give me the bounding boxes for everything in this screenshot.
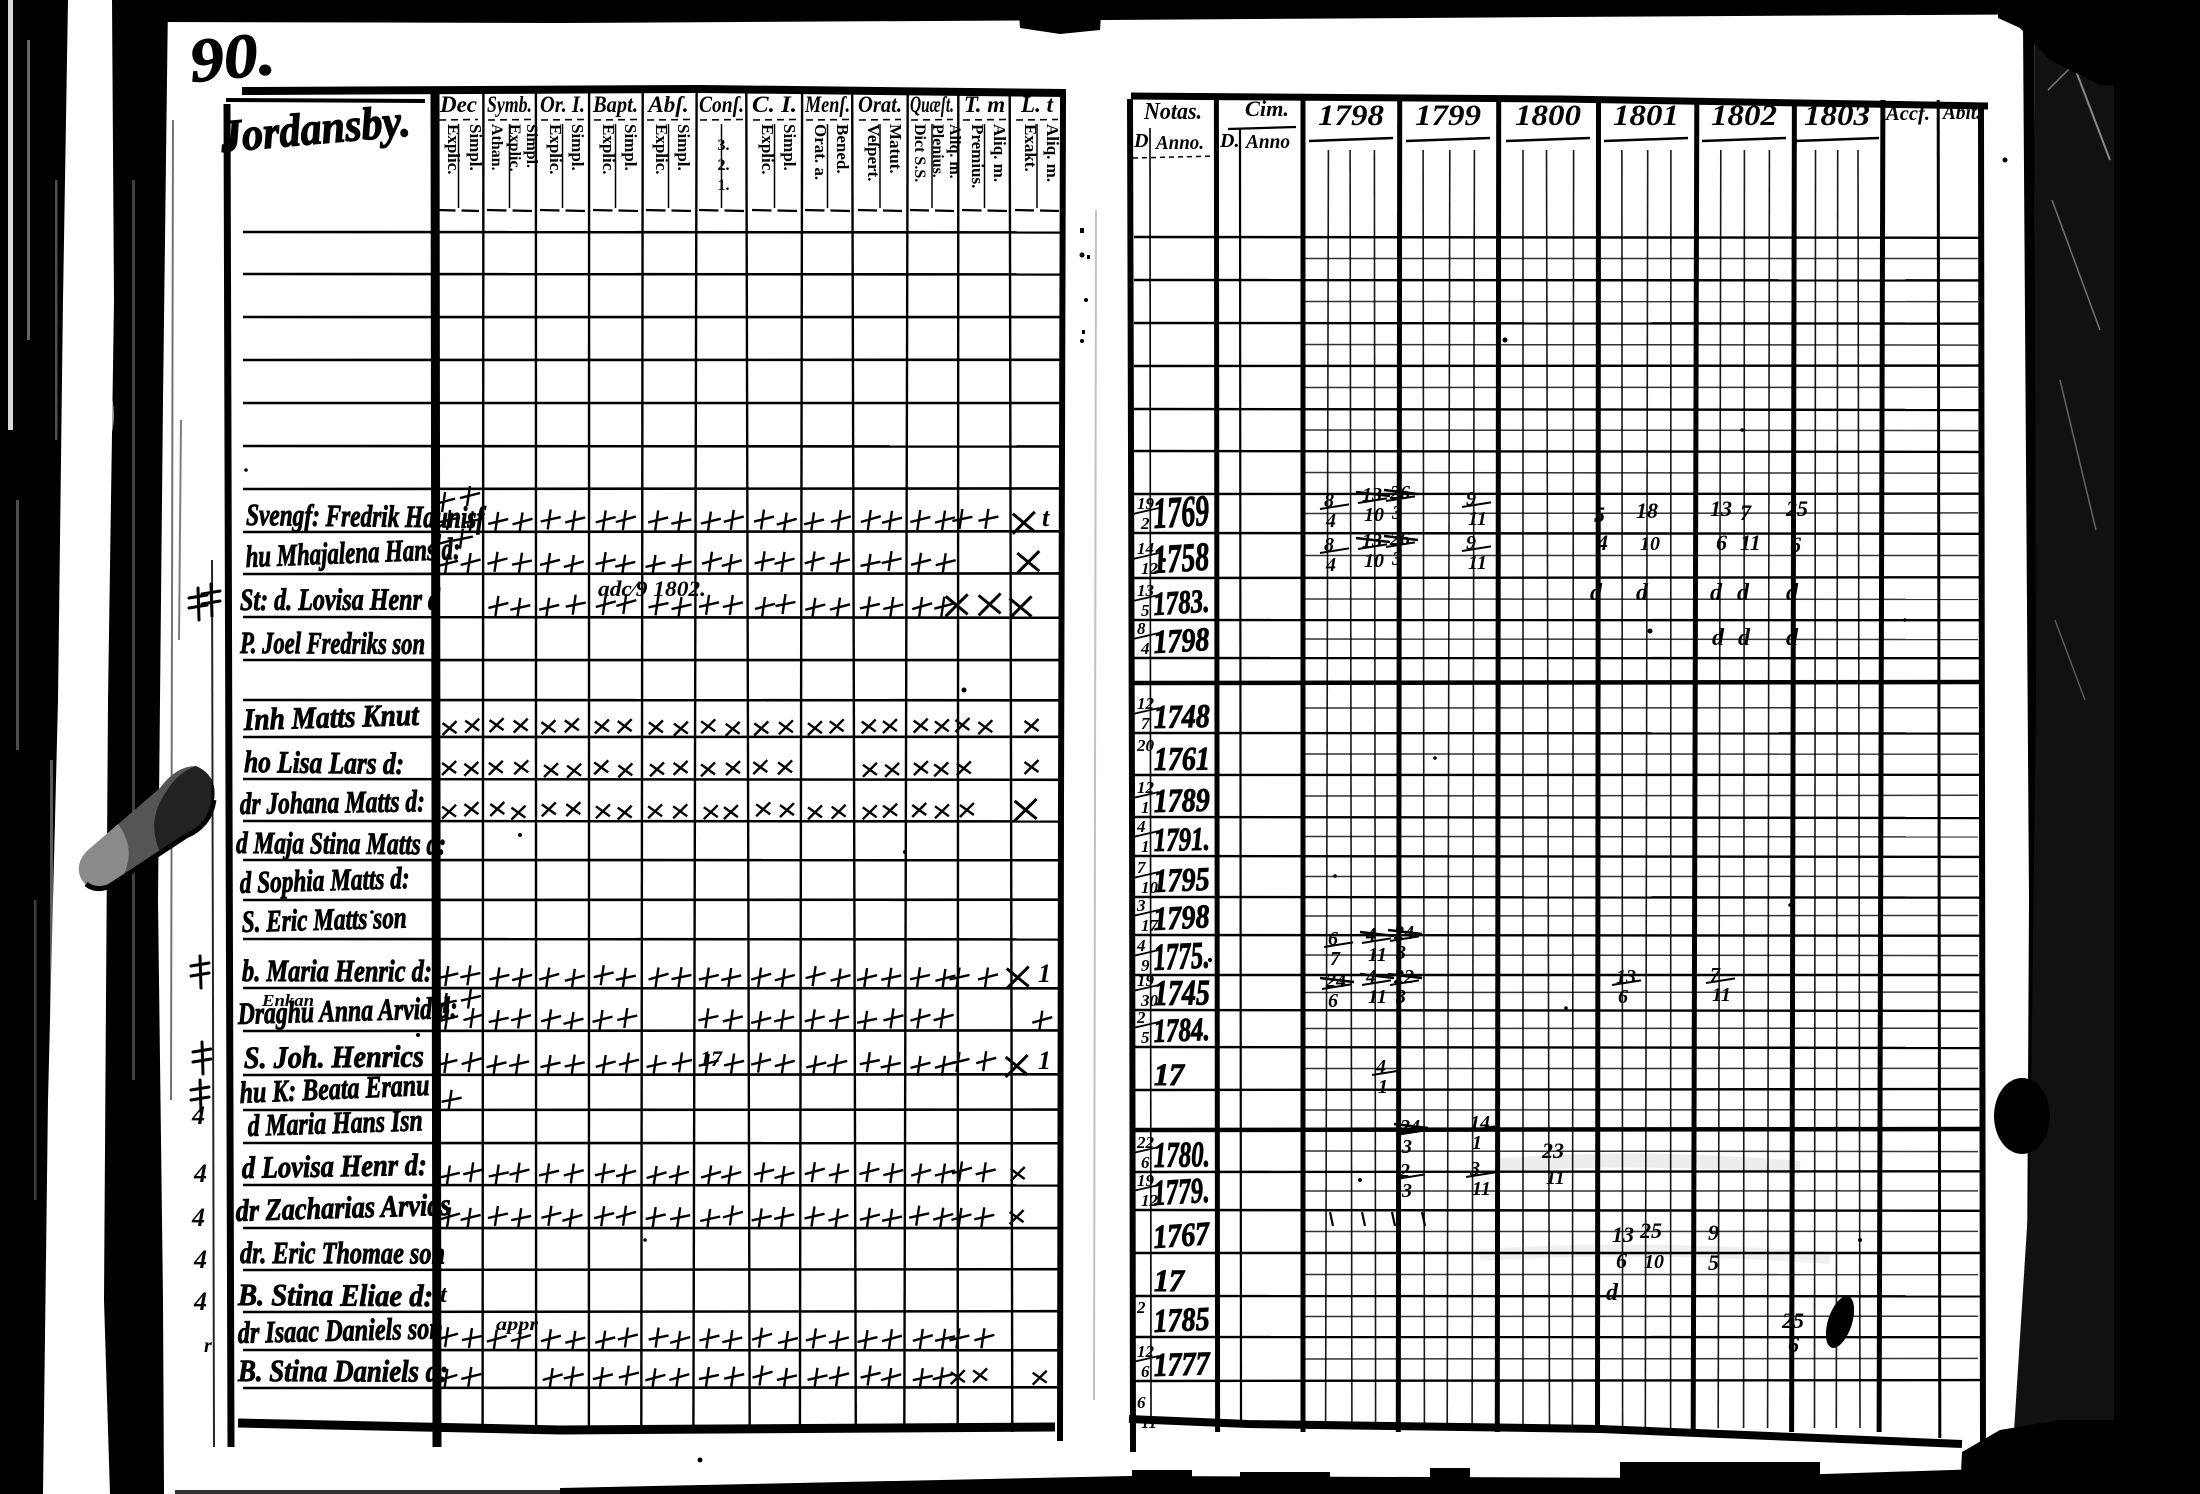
svg-text:Aliq. m.: Aliq. m.	[990, 124, 1009, 182]
svg-text:1.: 1.	[718, 177, 730, 194]
svg-text:Menſ.: Menſ.	[804, 92, 850, 117]
svg-text:d: d	[1710, 580, 1723, 606]
svg-text:4: 4	[193, 1287, 207, 1316]
svg-text:8: 8	[1137, 619, 1146, 638]
svg-text:1798: 1798	[1153, 899, 1211, 938]
svg-text:Accf.: Accf.	[1884, 101, 1930, 125]
svg-text:Dec: Dec	[439, 92, 477, 117]
svg-text:4: 4	[193, 1159, 207, 1188]
svg-text:d Maria Hans Isn: d Maria Hans Isn	[247, 1102, 423, 1143]
svg-text:3.: 3.	[718, 137, 730, 154]
svg-text:1758: 1758	[1152, 534, 1211, 582]
svg-text:5: 5	[1141, 601, 1150, 620]
svg-text:Aliq. m.: Aliq. m.	[1043, 124, 1062, 182]
svg-text:Dict S.S.: Dict S.S.	[911, 124, 928, 182]
svg-text:D.: D.	[1219, 130, 1239, 152]
svg-text:2: 2	[1136, 1008, 1146, 1027]
svg-text:adc⁄9 1802.: adc⁄9 1802.	[598, 576, 706, 601]
svg-text:1798: 1798	[1152, 622, 1210, 661]
svg-text:dr. Eric Thomae son: dr. Eric Thomae son	[240, 1235, 445, 1271]
svg-text:St: d. Lovisa Henr d: St: d. Lovisa Henr d	[240, 581, 440, 617]
svg-text:1761: 1761	[1154, 741, 1210, 778]
svg-text:12: 12	[1141, 1191, 1159, 1210]
svg-text:Simpl.: Simpl.	[568, 124, 587, 171]
svg-text:6: 6	[1716, 530, 1727, 555]
svg-text:1767: 1767	[1152, 1216, 1212, 1256]
svg-text:1795: 1795	[1153, 862, 1210, 900]
svg-text:4: 4	[193, 1245, 207, 1274]
svg-text:Simpl.: Simpl.	[523, 124, 540, 168]
svg-text:ho Lisa Lars d:: ho Lisa Lars d:	[244, 744, 404, 781]
svg-text:b. Maria Henric d:: b. Maria Henric d:	[242, 953, 432, 988]
svg-text:d: d	[1590, 580, 1603, 606]
svg-text:d: d	[1712, 625, 1725, 651]
svg-text:1799: 1799	[1415, 99, 1481, 132]
svg-text:Notas.: Notas.	[1143, 99, 1202, 125]
svg-text:1783.: 1783.	[1152, 583, 1210, 623]
svg-text:4: 4	[1136, 817, 1146, 836]
svg-text:11: 11	[1468, 552, 1487, 574]
svg-text:3: 3	[1136, 896, 1146, 915]
svg-text:Quæſt.: Quæſt.	[910, 92, 954, 117]
svg-text:10: 10	[1640, 533, 1660, 555]
svg-text:dr Johana Matts d:: dr Johana Matts d:	[240, 783, 425, 821]
svg-text:11: 11	[1712, 984, 1731, 1006]
svg-text:Matut.: Matut.	[886, 124, 905, 174]
svg-text:4: 4	[191, 1203, 205, 1232]
svg-text:1803: 1803	[1804, 99, 1870, 132]
svg-text:1: 1	[1038, 959, 1051, 988]
svg-text:6: 6	[1137, 1393, 1146, 1412]
svg-text:dr Isaac Daniels son: dr Isaac Daniels son	[237, 1310, 443, 1350]
svg-text:1: 1	[1472, 1132, 1482, 1154]
svg-text:d: d	[1738, 625, 1751, 651]
svg-text:Explic.: Explic.	[444, 124, 463, 175]
svg-text:Bened.: Bened.	[833, 124, 852, 174]
svg-text:Conſ.: Conſ.	[699, 92, 744, 117]
svg-text:17: 17	[1141, 916, 1160, 935]
svg-text:9: 9	[1708, 1220, 1719, 1245]
svg-text:11: 11	[1368, 944, 1387, 966]
svg-text:2: 2	[1136, 1298, 1146, 1317]
svg-text:Anno.: Anno.	[1154, 132, 1204, 154]
svg-text:d: d	[1636, 580, 1649, 606]
svg-text:Simpl.: Simpl.	[466, 124, 485, 171]
svg-text:Simpl.: Simpl.	[780, 124, 799, 171]
svg-text:1802: 1802	[1711, 99, 1777, 132]
svg-text:3: 3	[1395, 942, 1406, 964]
svg-text:11: 11	[1546, 1167, 1565, 1189]
svg-text:11: 11	[1472, 1178, 1491, 1200]
svg-text:11: 11	[1468, 508, 1487, 530]
svg-text:Athan.: Athan.	[488, 124, 505, 171]
svg-text:3: 3	[1391, 548, 1402, 570]
svg-text:1777: 1777	[1153, 1346, 1211, 1384]
svg-text:r: r	[204, 1335, 212, 1357]
svg-text:d: d	[1606, 1280, 1619, 1306]
svg-text:D: D	[1133, 130, 1148, 152]
svg-text:7: 7	[1740, 500, 1752, 525]
svg-text:C. I.: C. I.	[752, 92, 797, 117]
svg-text:B. Stina Daniels d:: B. Stina Daniels d:	[237, 1353, 448, 1389]
svg-text:5: 5	[1141, 1028, 1150, 1047]
svg-text:Abit.: Abit.	[1941, 100, 1981, 124]
svg-text:6: 6	[1618, 986, 1628, 1008]
svg-text:d Sophia Matts d:: d Sophia Matts d:	[239, 860, 410, 900]
svg-text:7: 7	[1330, 948, 1341, 970]
svg-text:6: 6	[1790, 532, 1801, 557]
svg-text:T. m: T. m	[964, 92, 1005, 117]
svg-text:1769: 1769	[1152, 486, 1211, 538]
svg-text:6: 6	[1141, 1153, 1150, 1172]
svg-text:13: 13	[1612, 1222, 1634, 1247]
svg-text:1798: 1798	[1318, 99, 1384, 132]
svg-text:P. Joel Fredriks son: P. Joel Fredriks son	[239, 625, 425, 661]
svg-text:10: 10	[1364, 550, 1384, 572]
svg-text:25: 25	[1639, 1218, 1662, 1243]
svg-text:20: 20	[1136, 736, 1155, 755]
svg-text:1800: 1800	[1515, 99, 1581, 132]
svg-text:3: 3	[1391, 502, 1402, 524]
svg-text:1791.: 1791.	[1153, 822, 1210, 859]
svg-text:4: 4	[191, 1101, 205, 1130]
svg-text:5: 5	[1594, 502, 1605, 527]
svg-text:Aliq. m.: Aliq. m.	[946, 124, 963, 179]
svg-text:Symb.: Symb.	[487, 92, 532, 117]
svg-text:1789: 1789	[1153, 783, 1210, 820]
svg-text:S. Eric Matts son: S. Eric Matts son	[241, 900, 407, 939]
svg-text:90.: 90.	[186, 19, 278, 96]
svg-text:6: 6	[1328, 990, 1338, 1012]
svg-text:11: 11	[1740, 530, 1761, 555]
svg-text:11: 11	[1141, 1413, 1157, 1432]
svg-text:4: 4	[1596, 530, 1608, 555]
svg-text:10: 10	[1364, 504, 1384, 526]
svg-text:Bapt.: Bapt.	[592, 92, 638, 117]
svg-text:d: d	[1737, 580, 1750, 606]
svg-text:12: 12	[1141, 559, 1159, 578]
svg-text:Simpl.: Simpl.	[674, 124, 693, 171]
svg-text:11: 11	[1368, 986, 1387, 1008]
svg-text:2: 2	[1140, 514, 1150, 533]
svg-text:1779.: 1779.	[1152, 1170, 1210, 1213]
svg-text:17: 17	[1154, 1057, 1186, 1092]
svg-text:1784.: 1784.	[1153, 1012, 1210, 1050]
svg-text:4: 4	[1140, 639, 1150, 658]
svg-text:2.: 2.	[718, 157, 730, 174]
svg-text:6: 6	[1141, 1362, 1150, 1381]
svg-text:Abſ.: Abſ.	[646, 92, 688, 117]
svg-text:3: 3	[1401, 1180, 1412, 1202]
svg-text:25: 25	[1785, 496, 1808, 521]
svg-text:3: 3	[1395, 986, 1406, 1008]
svg-text:1801: 1801	[1613, 99, 1679, 132]
svg-text:Cim.: Cim.	[1245, 96, 1289, 121]
svg-text:10: 10	[1141, 878, 1159, 897]
svg-text:3: 3	[1401, 1136, 1412, 1158]
svg-text:Enkan: Enkan	[261, 991, 314, 1010]
svg-text:Simpl.: Simpl.	[621, 124, 640, 171]
svg-text:Or. I.: Or. I.	[540, 92, 585, 117]
svg-text:1: 1	[1141, 837, 1150, 856]
svg-text:25: 25	[1781, 1308, 1804, 1333]
svg-text:appr: appr	[496, 1314, 539, 1334]
svg-text:Anno: Anno	[1244, 131, 1290, 153]
svg-text:4: 4	[1325, 510, 1336, 532]
svg-text:1: 1	[1141, 798, 1150, 817]
svg-text:13: 13	[1710, 496, 1732, 521]
svg-text:d: d	[1786, 625, 1799, 651]
svg-text:Explic.: Explic.	[506, 124, 523, 172]
svg-text:1745: 1745	[1154, 972, 1210, 1013]
svg-text:1780.: 1780.	[1153, 1134, 1210, 1175]
svg-text:Orat.: Orat.	[858, 92, 902, 117]
svg-text:1785: 1785	[1153, 1302, 1211, 1340]
svg-text:4: 4	[1325, 554, 1336, 576]
svg-text:Inh Matts Knut: Inh Matts Knut	[242, 697, 420, 737]
svg-text:6: 6	[1788, 1332, 1799, 1357]
svg-text:d Maja Stina Matts d:: d Maja Stina Matts d:	[236, 825, 446, 861]
svg-text:dr Zacharias Arvids: dr Zacharias Arvids	[235, 1187, 451, 1228]
svg-text:4: 4	[1136, 936, 1146, 955]
svg-text:d: d	[1786, 580, 1799, 606]
svg-text:17: 17	[700, 1046, 723, 1071]
svg-text:18: 18	[1636, 498, 1658, 523]
svg-text:L. t: L. t	[1020, 92, 1054, 117]
svg-text:d Lovisa Henr d:: d Lovisa Henr d:	[242, 1147, 428, 1185]
svg-text:1748: 1748	[1153, 699, 1210, 736]
svg-text:B. Stina Eliae d:: B. Stina Eliae d:	[237, 1277, 433, 1313]
svg-text:t: t	[1042, 503, 1050, 532]
svg-text:1: 1	[1378, 1076, 1388, 1098]
svg-text:1: 1	[1038, 1046, 1051, 1075]
svg-text:17: 17	[1154, 1263, 1186, 1298]
